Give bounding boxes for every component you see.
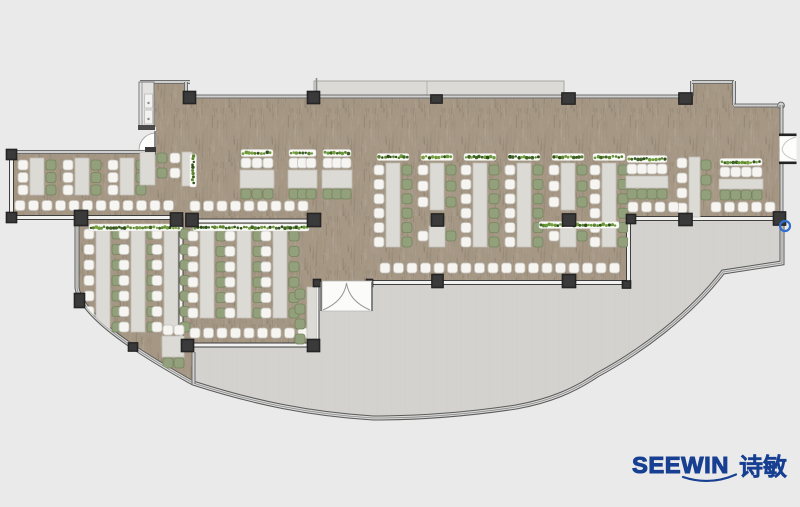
svg-text:SEEWIN: SEEWIN xyxy=(632,452,729,478)
svg-text:诗敏: 诗敏 xyxy=(739,454,787,481)
